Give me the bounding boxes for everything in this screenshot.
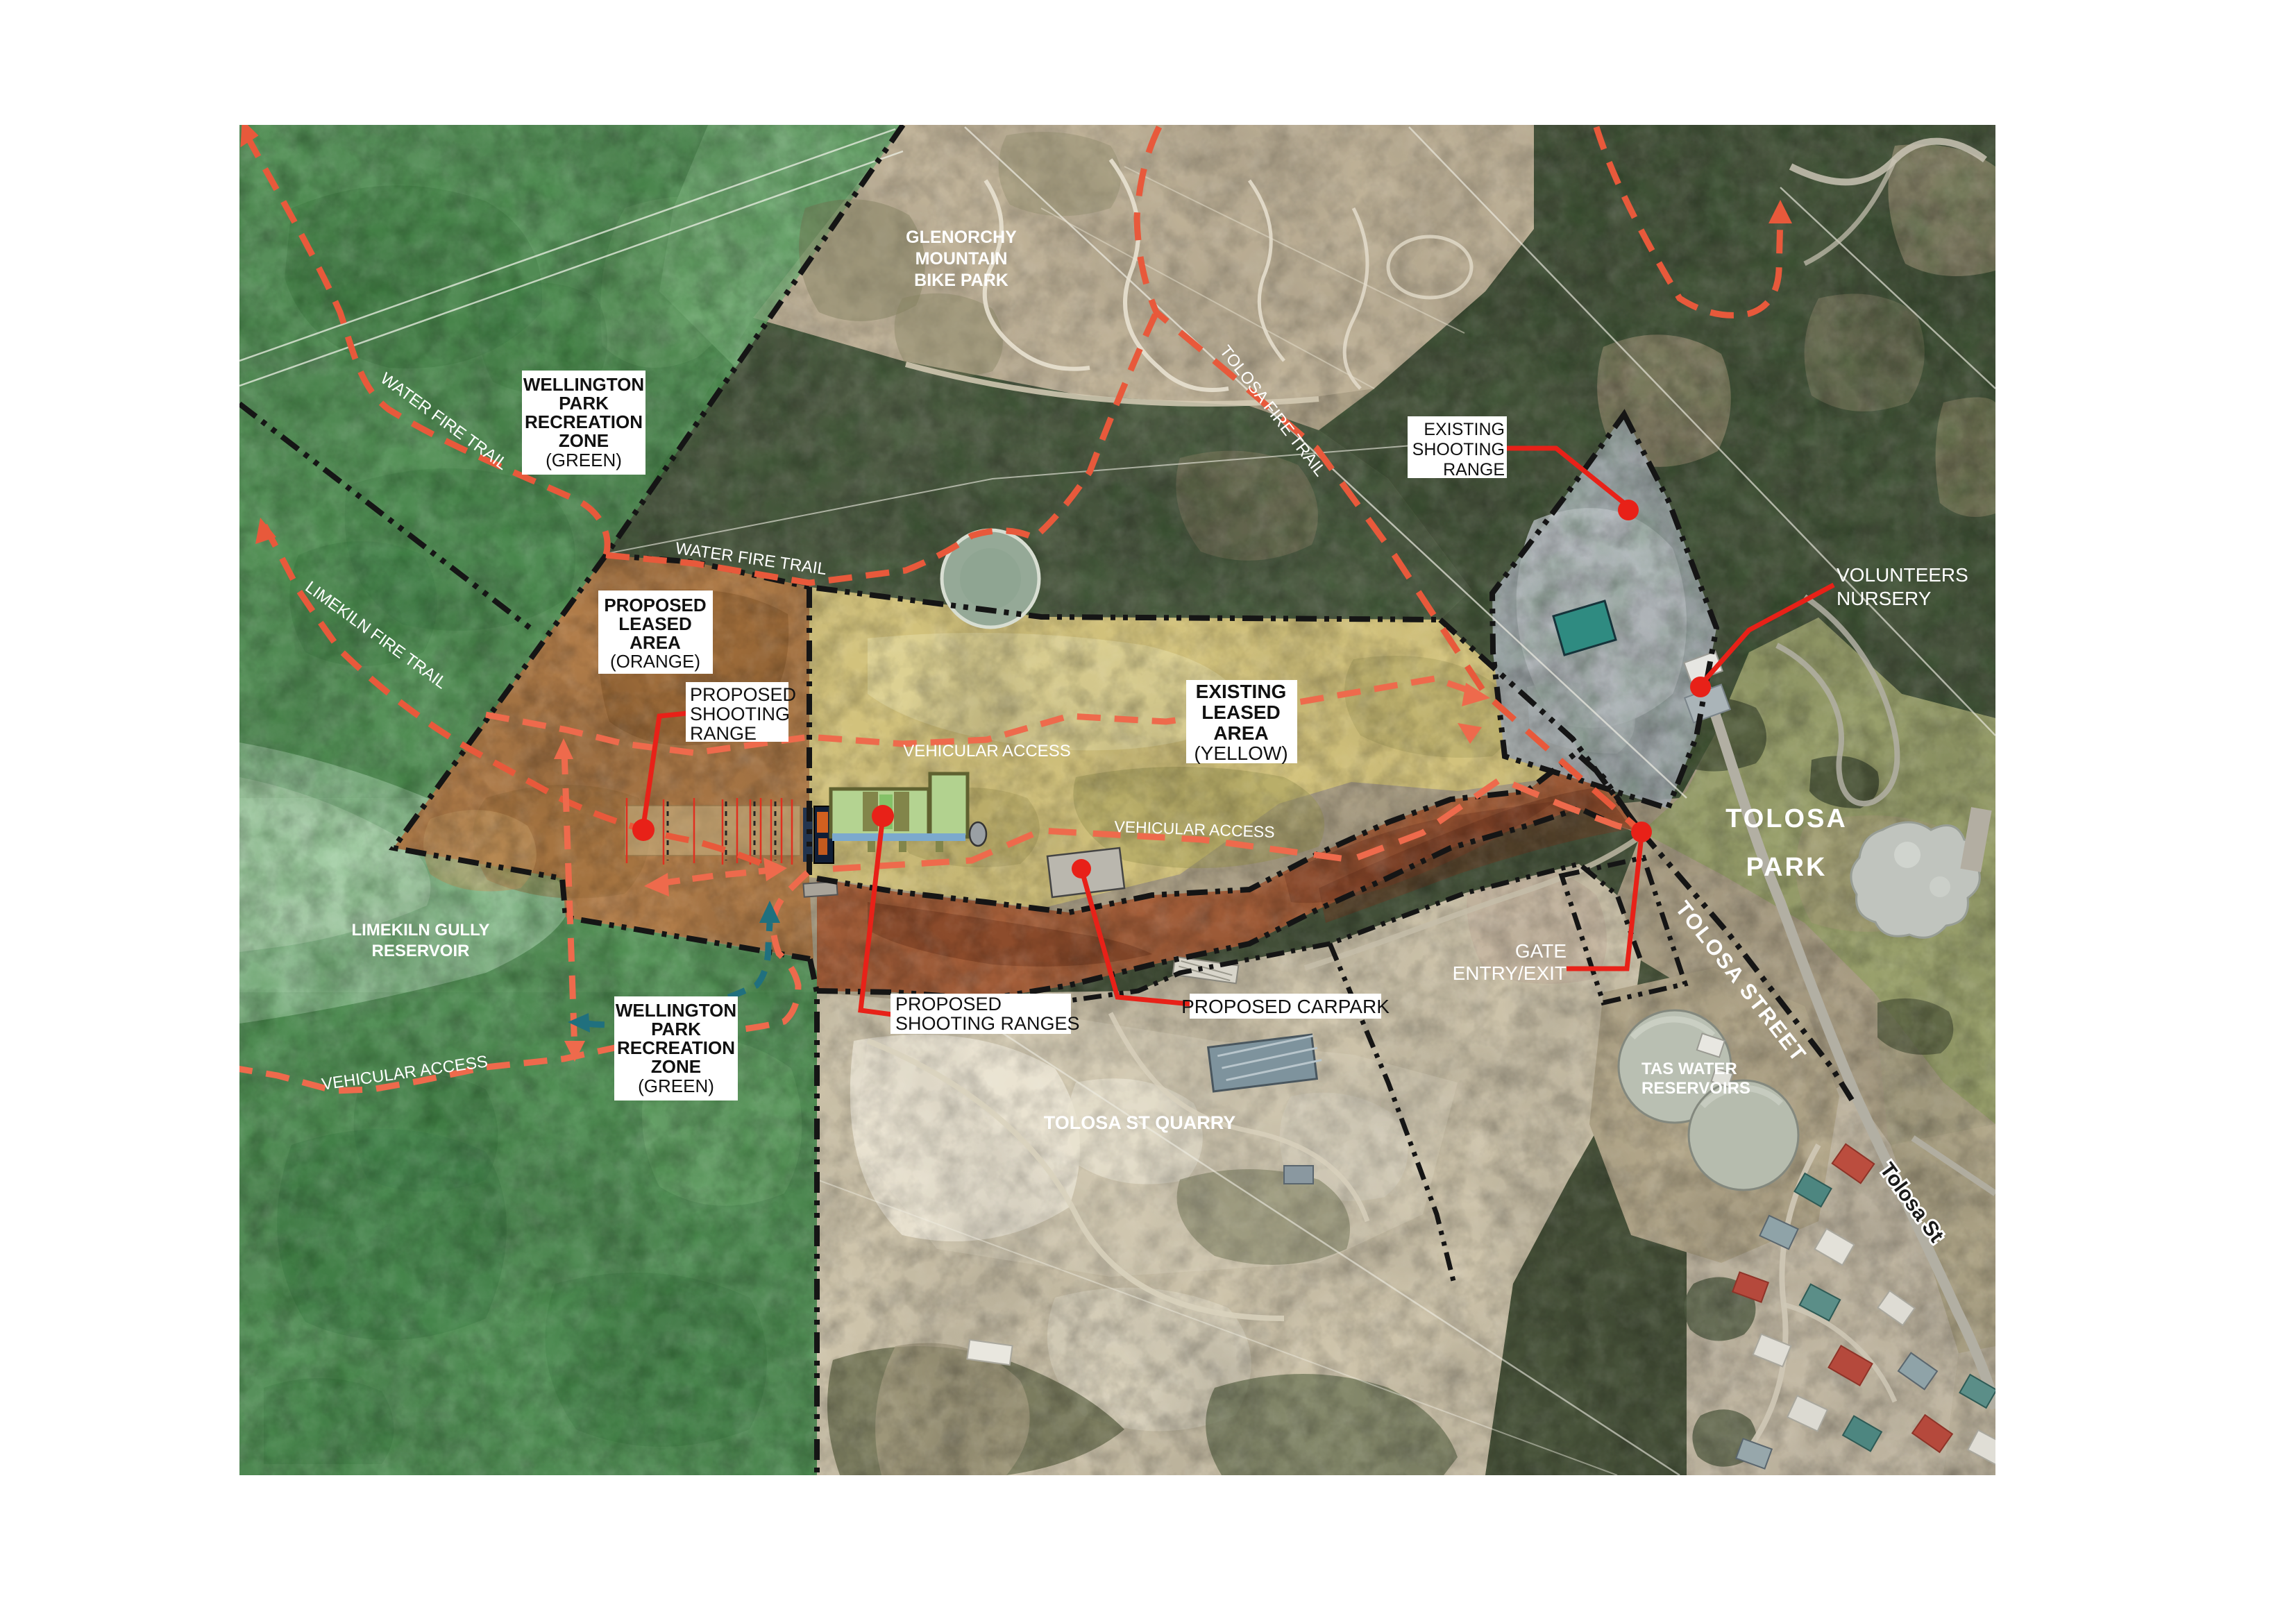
svg-text:BIKE PARK: BIKE PARK — [914, 271, 1008, 290]
svg-text:GATE: GATE — [1515, 940, 1567, 962]
svg-text:LEASED: LEASED — [618, 613, 691, 634]
svg-text:SHOOTING RANGES: SHOOTING RANGES — [895, 1013, 1080, 1034]
svg-text:ZONE: ZONE — [651, 1056, 701, 1077]
svg-text:AREA: AREA — [630, 632, 681, 653]
svg-text:RESERVOIR: RESERVOIR — [372, 942, 470, 960]
svg-text:(GREEN): (GREEN) — [638, 1076, 714, 1096]
svg-text:NURSERY: NURSERY — [1837, 588, 1932, 609]
svg-text:LEASED: LEASED — [1201, 702, 1281, 723]
svg-text:PARK: PARK — [651, 1019, 701, 1039]
svg-text:RESERVOIRS: RESERVOIRS — [1641, 1079, 1750, 1098]
svg-text:(YELLOW): (YELLOW) — [1194, 742, 1288, 764]
svg-text:RECREATION: RECREATION — [617, 1037, 735, 1058]
svg-text:PARK: PARK — [559, 393, 609, 414]
svg-text:(ORANGE): (ORANGE) — [610, 651, 700, 672]
svg-text:VOLUNTEERS: VOLUNTEERS — [1837, 564, 1968, 586]
svg-text:AREA: AREA — [1213, 722, 1268, 744]
svg-text:PROPOSED CARPARK: PROPOSED CARPARK — [1181, 996, 1390, 1017]
svg-text:TOLOSA: TOLOSA — [1725, 804, 1848, 833]
svg-text:PROPOSED: PROPOSED — [604, 595, 706, 615]
svg-text:LIMEKILN GULLY: LIMEKILN GULLY — [351, 921, 489, 940]
svg-text:SHOOTING: SHOOTING — [690, 704, 790, 724]
svg-text:RANGE: RANGE — [690, 723, 757, 744]
svg-text:TAS WATER: TAS WATER — [1641, 1060, 1737, 1078]
svg-text:WELLINGTON: WELLINGTON — [523, 374, 644, 395]
svg-text:ZONE: ZONE — [559, 430, 609, 451]
svg-text:VEHICULAR ACCESS: VEHICULAR ACCESS — [903, 742, 1070, 760]
svg-text:EXISTING: EXISTING — [1424, 420, 1505, 439]
svg-text:SHOOTING: SHOOTING — [1412, 440, 1505, 459]
svg-text:RECREATION: RECREATION — [525, 411, 643, 432]
svg-text:GLENORCHY: GLENORCHY — [906, 228, 1017, 247]
svg-text:TOLOSA ST QUARRY: TOLOSA ST QUARRY — [1044, 1112, 1236, 1133]
svg-text:RANGE: RANGE — [1443, 460, 1505, 479]
svg-text:WELLINGTON: WELLINGTON — [616, 1000, 736, 1021]
svg-text:EXISTING: EXISTING — [1196, 681, 1287, 702]
svg-text:PARK: PARK — [1746, 853, 1827, 882]
svg-text:PROPOSED: PROPOSED — [895, 994, 1002, 1014]
svg-text:ENTRY/EXIT: ENTRY/EXIT — [1453, 962, 1567, 984]
svg-text:(GREEN): (GREEN) — [546, 450, 622, 470]
svg-text:MOUNTAIN: MOUNTAIN — [915, 249, 1008, 269]
svg-text:PROPOSED: PROPOSED — [690, 684, 796, 705]
